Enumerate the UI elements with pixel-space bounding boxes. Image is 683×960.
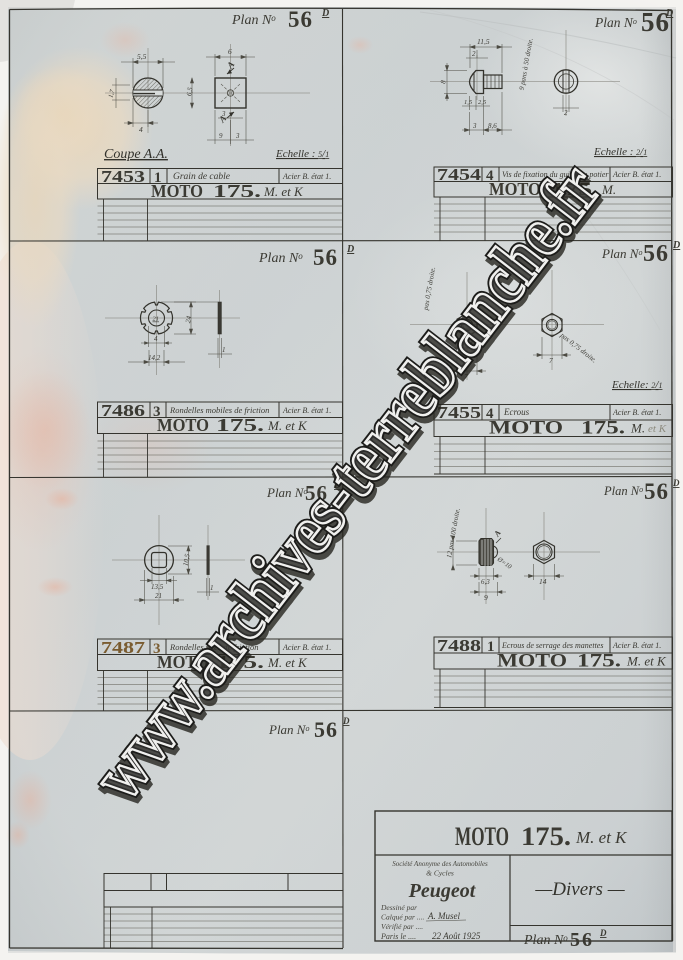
svg-text:3: 3 [221, 110, 226, 118]
svg-text:175.: 175. [577, 651, 621, 672]
svg-text:Plan No: Plan No [603, 484, 643, 498]
svg-text:14: 14 [539, 577, 547, 586]
svg-text:M. et K: M. et K [575, 828, 628, 847]
svg-text:Acier B. état 1.: Acier B. état 1. [612, 408, 661, 417]
svg-text:6,3: 6,3 [481, 578, 490, 586]
svg-text:D: D [346, 244, 354, 255]
svg-text:MOTO: MOTO [497, 651, 567, 672]
svg-text:21: 21 [153, 316, 160, 323]
svg-text:8,6: 8,6 [488, 122, 497, 130]
svg-text:9: 9 [484, 593, 488, 602]
svg-text:7454: 7454 [437, 165, 482, 184]
svg-text:& Cycles: & Cycles [426, 869, 454, 878]
svg-text:D: D [599, 928, 607, 938]
svg-text:M. et K: M. et K [626, 654, 667, 669]
svg-text:56: 56 [288, 7, 313, 32]
svg-text:56: 56 [314, 717, 338, 742]
svg-text:1: 1 [222, 346, 226, 354]
svg-text:Ecrous de serrage des manettes: Ecrous de serrage des manettes [501, 641, 603, 650]
svg-text:Plan No: Plan No [594, 15, 637, 30]
svg-text:Coupe A.A.: Coupe A.A. [104, 147, 168, 162]
svg-text:175.: 175. [216, 415, 264, 435]
svg-text:Acier B. état 1.: Acier B. état 1. [612, 170, 661, 179]
svg-text:1: 1 [487, 639, 495, 655]
svg-text:Paris le ....: Paris le .... [380, 932, 416, 941]
svg-text:7: 7 [549, 356, 553, 365]
svg-text:3: 3 [235, 132, 240, 140]
svg-text:Acier B. état 1.: Acier B. état 1. [282, 406, 331, 415]
svg-text:MOTO: MOTO [489, 418, 563, 439]
svg-text:MOTO: MOTO [151, 181, 203, 201]
svg-text:et K: et K [648, 423, 667, 435]
svg-text:M. et K: M. et K [267, 655, 308, 670]
svg-text:D: D [342, 716, 350, 726]
svg-text:D: D [321, 8, 329, 19]
svg-text:3: 3 [472, 122, 477, 130]
svg-text:D: D [665, 8, 673, 19]
svg-text:—Divers —: —Divers — [534, 879, 624, 900]
svg-text:Plan No: Plan No [268, 722, 309, 737]
svg-text:Echelle : 5/1: Echelle : 5/1 [275, 148, 329, 160]
svg-text:5,5: 5,5 [137, 52, 147, 61]
svg-text:7486: 7486 [101, 401, 145, 420]
svg-text:14,2: 14,2 [148, 354, 161, 362]
svg-text:Dessiné par: Dessiné par [380, 903, 417, 912]
svg-text:Ecrous: Ecrous [503, 407, 530, 417]
svg-text:4: 4 [139, 125, 143, 134]
svg-text:6: 6 [228, 47, 232, 56]
svg-text:56: 56 [643, 241, 669, 267]
svg-text:Echelle : 2/1: Echelle : 2/1 [593, 146, 647, 158]
svg-text:MOTO: MOTO [455, 822, 509, 851]
svg-text:Plan No: Plan No [258, 251, 303, 266]
svg-text:21: 21 [155, 592, 162, 600]
svg-text:56: 56 [570, 929, 594, 951]
svg-text:D: D [672, 240, 680, 251]
svg-text:M. et K: M. et K [267, 418, 308, 433]
svg-text:Acier B. état 1.: Acier B. état 1. [282, 172, 331, 181]
svg-text:7488: 7488 [437, 636, 481, 655]
svg-text:9: 9 [219, 132, 223, 140]
svg-text:7453: 7453 [101, 167, 145, 186]
svg-text:A. Musel: A. Musel [427, 911, 460, 921]
svg-text:175.: 175. [581, 418, 625, 439]
svg-text:4: 4 [154, 335, 158, 343]
svg-text:M.: M. [630, 421, 645, 436]
svg-text:56: 56 [313, 245, 338, 270]
svg-text:Plan No: Plan No [523, 933, 568, 948]
svg-text:22 Août 1925: 22 Août 1925 [432, 931, 481, 941]
svg-text:D: D [672, 478, 680, 488]
svg-text:2: 2 [472, 50, 476, 58]
svg-text:Calqué par ....: Calqué par .... [381, 913, 424, 922]
svg-text:1,5: 1,5 [464, 99, 473, 106]
svg-text:175.: 175. [213, 181, 261, 201]
svg-text:Acier B. état 1.: Acier B. état 1. [612, 641, 661, 650]
svg-text:2,5: 2,5 [478, 99, 487, 106]
svg-text:175.: 175. [521, 822, 571, 851]
svg-text:7487: 7487 [101, 638, 146, 657]
svg-text:Plan No: Plan No [231, 13, 276, 28]
svg-text:56: 56 [644, 479, 669, 504]
svg-text:Société Anonyme des Automobile: Société Anonyme des Automobiles [392, 860, 488, 868]
svg-text:M. et K: M. et K [263, 184, 304, 199]
svg-text:Plan No: Plan No [601, 246, 642, 261]
svg-text:MOTO: MOTO [157, 415, 209, 435]
svg-text:Peugeot: Peugeot [408, 880, 477, 902]
svg-text:2: 2 [564, 109, 568, 117]
svg-text:Acier B. état 1.: Acier B. état 1. [282, 643, 331, 652]
svg-text:Rondelles mobiles de friction: Rondelles mobiles de friction [169, 405, 269, 415]
svg-text:Vérifié par ....: Vérifié par .... [381, 922, 423, 931]
svg-text:11,5: 11,5 [477, 37, 490, 46]
svg-text:Echelle: 2/1: Echelle: 2/1 [611, 379, 662, 391]
svg-text:13,5: 13,5 [151, 583, 164, 591]
